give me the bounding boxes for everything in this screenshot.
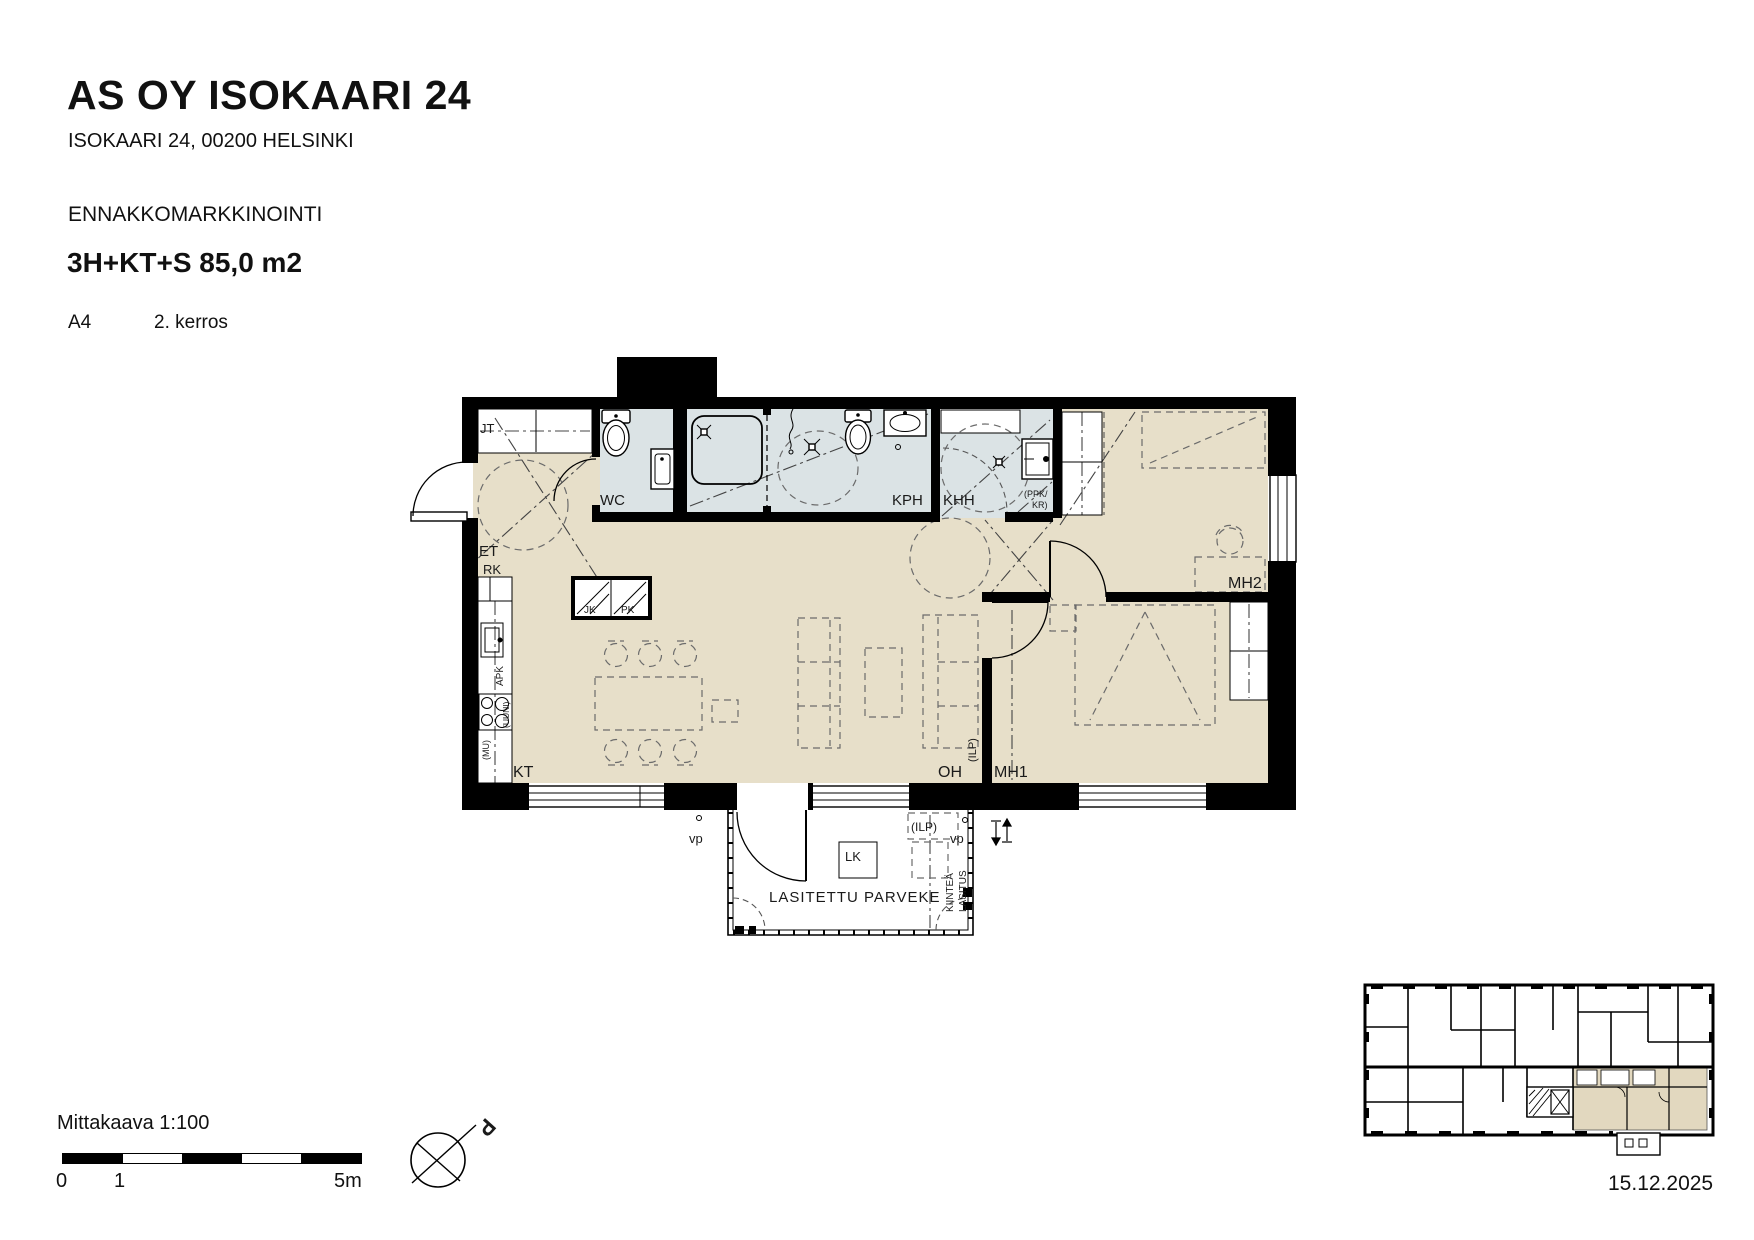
overview-balcony-stub — [1617, 1133, 1660, 1155]
label-jt: JT — [480, 421, 495, 436]
label-fixed-glazing-2: LASITUS — [958, 870, 969, 912]
address: ISOKAARI 24, 00200 HELSINKI — [68, 130, 354, 153]
label-vp-right: vp — [950, 831, 964, 846]
unit-floor-row: A42. kerros — [68, 312, 228, 334]
unit-id: A4 — [68, 312, 154, 334]
label-pk: PK — [621, 605, 635, 616]
label-khh: KHH — [943, 492, 975, 509]
floor-number: 2. kerros — [154, 312, 228, 333]
label-ilp-balcony: (ILP) — [911, 820, 937, 834]
label-apk: APK — [495, 666, 506, 686]
label-lk: LK — [845, 849, 861, 864]
label-glazed-balcony: LASITETTU PARVEKE — [769, 889, 941, 906]
window-mh1 — [1074, 783, 1211, 810]
label-wc: WC — [600, 492, 625, 509]
plan-date: 15.12.2025 — [1608, 1172, 1713, 1196]
label-kr: KR) — [1032, 500, 1048, 510]
label-rk: RK — [483, 562, 501, 577]
label-mu: (MU) — [481, 740, 491, 760]
label-mh1: MH1 — [994, 764, 1028, 781]
label-ppk: (PPK/ — [1024, 489, 1048, 499]
label-kt: KT — [513, 764, 534, 781]
label-uuni: (UUNI) — [501, 701, 511, 728]
label-jk: JK — [584, 605, 596, 616]
window-oh — [808, 783, 914, 810]
marketing-status: ENNAKKOMARKKINOINTI — [68, 203, 322, 227]
page-title: AS OY ISOKAARI 24 — [67, 72, 471, 119]
vp-point-right — [963, 818, 968, 823]
scale-bar — [62, 1153, 362, 1164]
wc-toilet-icon — [602, 410, 630, 456]
overview-plan — [1363, 982, 1715, 1182]
scale-label: Mittakaava 1:100 — [57, 1112, 209, 1135]
vent-shaft — [617, 357, 717, 397]
label-kph: KPH — [892, 492, 923, 509]
window-mh2 — [1268, 471, 1296, 566]
vp-point-left — [697, 816, 702, 821]
floorplan-sheet: { "header": { "title": "AS OY ISOKAARI 2… — [0, 0, 1754, 1240]
scale-tick-5: 5m — [334, 1170, 362, 1193]
label-ilp-oh: (ILP) — [967, 738, 979, 762]
rk-cabinet-fill — [478, 577, 512, 601]
kph-toilet-icon — [845, 410, 871, 454]
balcony-door — [737, 810, 806, 881]
height-arrows-icon — [991, 819, 1012, 845]
wc-sink-icon — [651, 449, 674, 489]
label-mh2: MH2 — [1228, 575, 1262, 592]
floor-plan: JT WC KPH KHH (PPK/ KR) ET RK JK PK APK … — [400, 350, 1310, 950]
label-et: ET — [479, 543, 498, 560]
entrance-door — [411, 462, 467, 521]
window-kt — [524, 783, 669, 810]
apartment-type: 3H+KT+S 85,0 m2 — [67, 247, 302, 279]
label-vp-left: vp — [689, 831, 703, 846]
label-fixed-glazing-1: KIINTEÄ — [944, 873, 956, 912]
scale-tick-1: 1 — [114, 1170, 125, 1193]
scale-tick-0: 0 — [56, 1170, 67, 1193]
north-compass-icon: P — [400, 1105, 510, 1205]
stair-core — [1527, 1087, 1573, 1117]
label-oh: OH — [938, 764, 962, 781]
north-label: P — [472, 1114, 500, 1142]
khh-counter — [940, 409, 1020, 433]
